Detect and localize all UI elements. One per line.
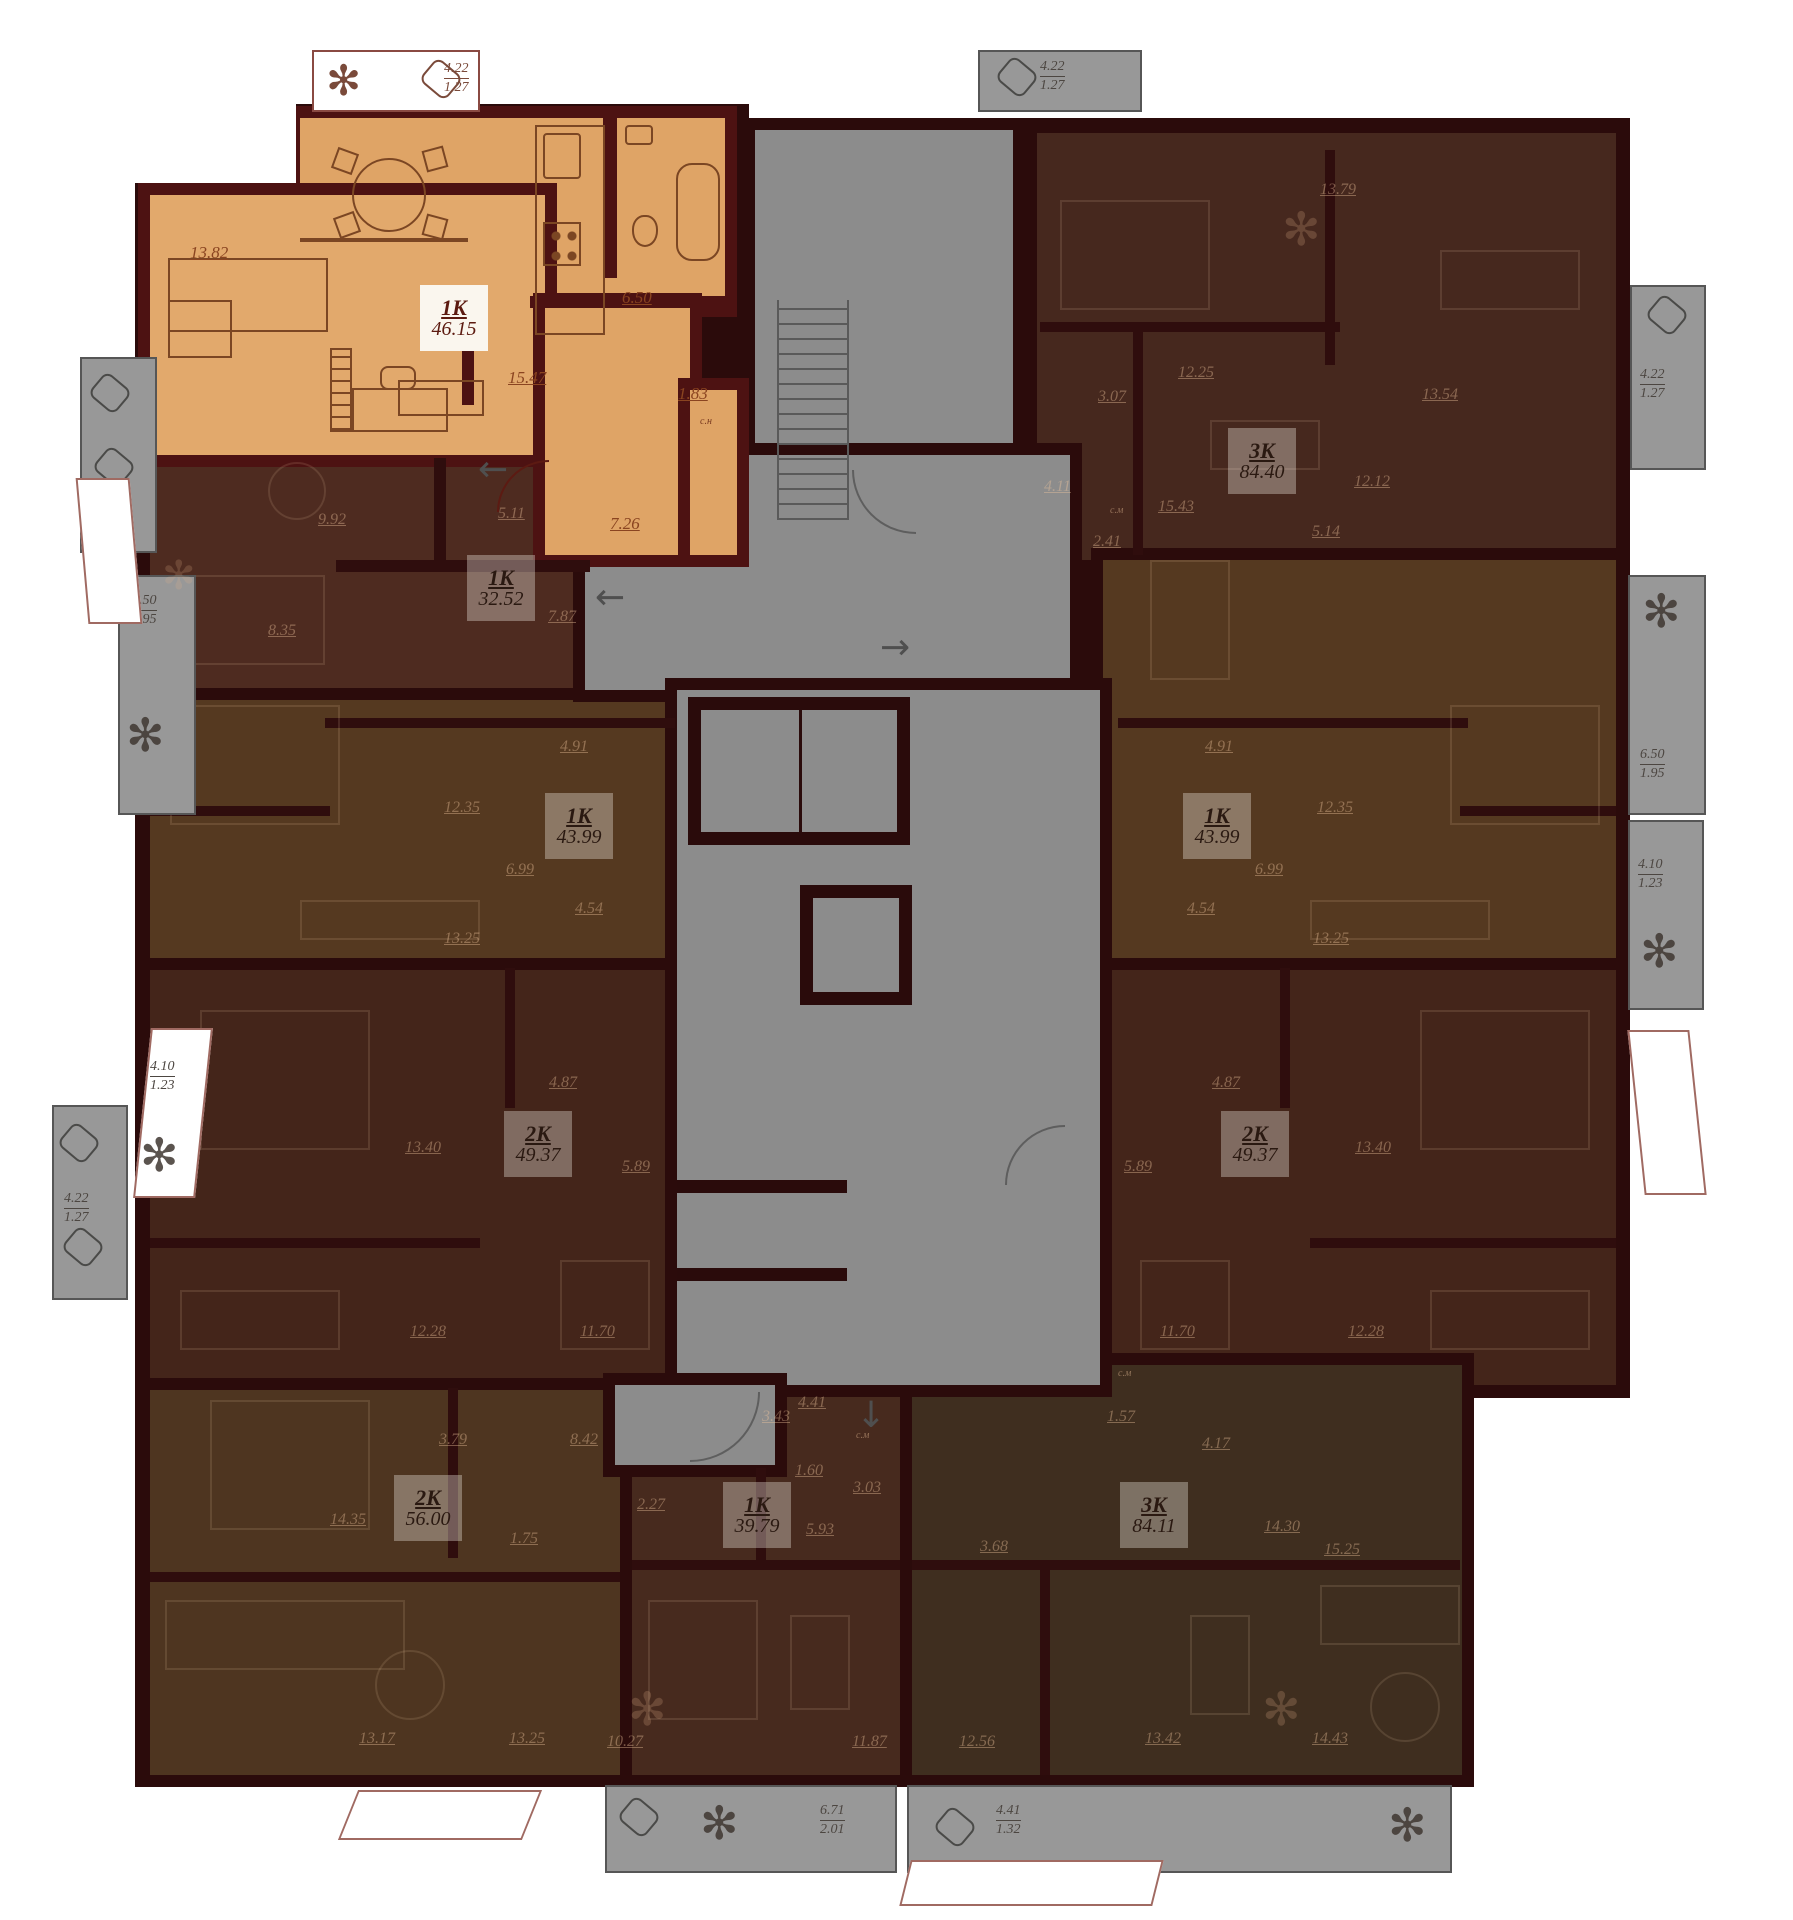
room-dim: 13.40 bbox=[1355, 1139, 1391, 1157]
balcony-label: 6.712.01 bbox=[820, 1802, 845, 1838]
room-dim: 15.43 bbox=[1158, 498, 1194, 516]
room-dim: 4.54 bbox=[575, 900, 603, 918]
room-dim: 6.50 bbox=[622, 288, 652, 308]
room-dim: 12.56 bbox=[959, 1733, 995, 1751]
room-dim: 5.93 bbox=[806, 1521, 834, 1539]
room-dim: 1.75 bbox=[510, 1530, 538, 1548]
room-dim: 10.27 bbox=[607, 1733, 643, 1751]
room-dim: 4.91 bbox=[1205, 738, 1233, 756]
room-dim: 13.17 bbox=[359, 1730, 395, 1748]
room-dim: 14.30 bbox=[1264, 1518, 1300, 1536]
unit-label-49-37-left[interactable]: 2K49.37 bbox=[504, 1111, 572, 1177]
room-dim: 4.17 bbox=[1202, 1435, 1230, 1453]
room-dim: 13.25 bbox=[1313, 930, 1349, 948]
room-dim: 9.92 bbox=[318, 511, 346, 529]
room-dim: 5.89 bbox=[622, 1158, 650, 1176]
room-dim: 12.12 bbox=[1354, 473, 1390, 491]
room-dim: 3.68 bbox=[980, 1538, 1008, 1556]
room-dim: 3.03 bbox=[853, 1479, 881, 1497]
room-dim: 11.70 bbox=[580, 1323, 615, 1341]
room-dim: 7.26 bbox=[610, 514, 640, 534]
storage-label: с.м bbox=[1110, 505, 1123, 516]
bathtub bbox=[676, 163, 720, 261]
floorplan-canvas: ← ← → ↓ ✻ 4.221.27 4. bbox=[0, 0, 1793, 1920]
unit-label-39-79[interactable]: 1K39.79 bbox=[723, 1482, 791, 1548]
room-dim: 7.87 bbox=[548, 608, 576, 626]
room-dim: 8.35 bbox=[268, 622, 296, 640]
unit-label-84-40[interactable]: 3K84.40 bbox=[1228, 428, 1296, 494]
bay-window-right bbox=[1627, 1030, 1706, 1195]
unit-label-43-99-left[interactable]: 1K43.99 bbox=[545, 793, 613, 859]
shelf bbox=[330, 348, 352, 432]
unit-label-32-52[interactable]: 1K32.52 bbox=[467, 555, 535, 621]
storage-label: с.м bbox=[1118, 1368, 1131, 1379]
room-dim: 5.11 bbox=[498, 505, 525, 523]
room-dim: 11.87 bbox=[852, 1733, 887, 1751]
balcony-label: 4.221.27 bbox=[1640, 366, 1665, 402]
room-dim: 5.14 bbox=[1312, 523, 1340, 541]
room-dim: 13.42 bbox=[1145, 1730, 1181, 1748]
room-dim: 1.57 bbox=[1107, 1408, 1135, 1426]
room-dim: 11.70 bbox=[1160, 1323, 1195, 1341]
room-dim: 14.43 bbox=[1312, 1730, 1348, 1748]
elevator-shaft bbox=[688, 697, 910, 845]
elevator-shaft-2 bbox=[800, 885, 912, 1005]
unit-label-46-15[interactable]: 1K46.15 bbox=[420, 285, 488, 351]
room-dim: 2.27 bbox=[637, 1496, 665, 1514]
balcony-label: 4.101.23 bbox=[150, 1058, 175, 1094]
bath-sink bbox=[625, 125, 653, 145]
tv-line bbox=[300, 238, 468, 242]
entry-arrow-icon: ↓ bbox=[856, 1398, 886, 1434]
room-dim: 5.89 bbox=[1124, 1158, 1152, 1176]
room-dim: 14.35 bbox=[330, 1511, 366, 1529]
room-dim: 15.47 bbox=[508, 368, 546, 388]
stairs bbox=[777, 300, 849, 520]
wardrobe-box bbox=[398, 380, 484, 416]
room-dim: 8.42 bbox=[570, 1431, 598, 1449]
balcony-label: 4.101.23 bbox=[1638, 856, 1663, 892]
room-dim: 13.25 bbox=[509, 1730, 545, 1748]
room-dim: 3.43 bbox=[762, 1408, 790, 1426]
balcony-label: 4.221.27 bbox=[1040, 58, 1065, 94]
kitchen-sink bbox=[543, 133, 581, 179]
balcony-right-low bbox=[1628, 820, 1704, 1010]
storage-label: с.н bbox=[700, 416, 712, 427]
room-dim: 2.41 bbox=[1093, 533, 1121, 551]
room-dim: 4.87 bbox=[1212, 1074, 1240, 1092]
room-dim: 12.35 bbox=[444, 799, 480, 817]
room-dim: 3.79 bbox=[439, 1431, 467, 1449]
balcony-label: 4.221.27 bbox=[64, 1190, 89, 1226]
unit-label-43-99-right[interactable]: 1K43.99 bbox=[1183, 793, 1251, 859]
room-dim: 13.25 bbox=[444, 930, 480, 948]
entry-arrow-icon: ← bbox=[478, 452, 508, 488]
room-dim: 12.28 bbox=[1348, 1323, 1384, 1341]
room-dim: 13.79 bbox=[1320, 181, 1356, 199]
apartment-46-15-wardrobe[interactable] bbox=[678, 378, 749, 567]
room-dim: 6.99 bbox=[1255, 861, 1283, 879]
balcony-label: 4.411.32 bbox=[996, 1802, 1021, 1838]
room-dim: 13.40 bbox=[405, 1139, 441, 1157]
room-dim: 15.25 bbox=[1324, 1541, 1360, 1559]
toilet bbox=[632, 215, 658, 247]
room-dim: 1.83 bbox=[678, 384, 708, 404]
room-dim: 13.82 bbox=[190, 243, 228, 263]
room-dim: 3.07 bbox=[1098, 388, 1126, 406]
unit-label-49-37-right[interactable]: 2K49.37 bbox=[1221, 1111, 1289, 1177]
dining-table bbox=[352, 158, 426, 232]
room-dim: 1.60 bbox=[795, 1462, 823, 1480]
entry-arrow-icon: ← bbox=[595, 580, 625, 616]
balcony-label: 6.501.95 bbox=[1640, 746, 1665, 782]
room-dim: 4.41 bbox=[798, 1394, 826, 1412]
balcony-label: 4.221.27 bbox=[444, 60, 469, 96]
room-dim: 6.99 bbox=[506, 861, 534, 879]
room-dim: 12.28 bbox=[410, 1323, 446, 1341]
room-dim: 4.11 bbox=[1044, 478, 1071, 496]
stove bbox=[543, 222, 581, 266]
room-dim: 4.87 bbox=[549, 1074, 577, 1092]
storage-label: с.м bbox=[856, 1430, 869, 1441]
room-dim: 4.91 bbox=[560, 738, 588, 756]
room-dim: 12.35 bbox=[1317, 799, 1353, 817]
room-dim: 13.54 bbox=[1422, 386, 1458, 404]
room-dim: 12.25 bbox=[1178, 364, 1214, 382]
unit-label-56-00[interactable]: 2K56.00 bbox=[394, 1475, 462, 1541]
unit-label-84-11[interactable]: 3K84.11 bbox=[1120, 1482, 1188, 1548]
entry-arrow-icon: → bbox=[880, 630, 910, 666]
room-dim: 4.54 bbox=[1187, 900, 1215, 918]
